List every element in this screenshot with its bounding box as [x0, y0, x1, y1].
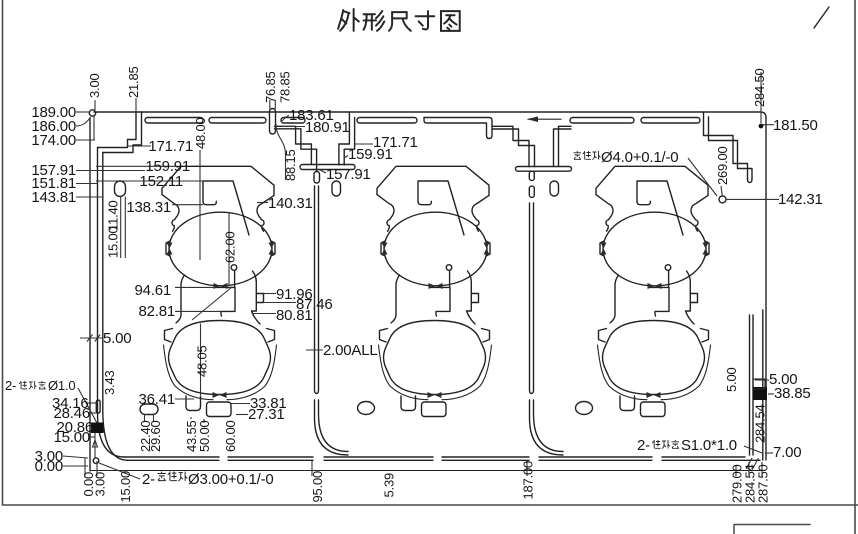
- svg-text:2-: 2-: [637, 437, 650, 454]
- svg-text:3.00: 3.00: [87, 73, 102, 98]
- svg-text:62.00: 62.00: [223, 231, 238, 263]
- svg-text:7.00: 7.00: [773, 444, 801, 461]
- svg-text:2.00ALL: 2.00ALL: [323, 342, 377, 359]
- svg-text:15.00: 15.00: [106, 226, 121, 258]
- svg-text:50.00: 50.00: [197, 420, 212, 452]
- svg-text:180.91: 180.91: [305, 119, 350, 136]
- svg-text:171.71: 171.71: [148, 138, 193, 155]
- svg-text:36.41: 36.41: [138, 391, 175, 408]
- svg-text:0.00: 0.00: [35, 458, 63, 475]
- svg-text:38.85: 38.85: [774, 385, 811, 402]
- svg-text:78.85: 78.85: [278, 71, 293, 103]
- svg-text:152.11: 152.11: [139, 173, 183, 190]
- svg-text:5.39: 5.39: [382, 473, 397, 498]
- svg-text:21.85: 21.85: [126, 66, 141, 98]
- svg-text:187.00: 187.00: [521, 461, 536, 500]
- svg-text:15.00: 15.00: [118, 471, 133, 503]
- svg-text:174.00: 174.00: [31, 132, 76, 149]
- svg-text:Ø1.0: Ø1.0: [48, 378, 75, 393]
- svg-text:159.91: 159.91: [348, 146, 393, 163]
- svg-text:3.43: 3.43: [102, 370, 117, 395]
- svg-text:3.00: 3.00: [93, 472, 108, 497]
- svg-text:157.91: 157.91: [326, 166, 371, 183]
- svg-text:48.00: 48.00: [193, 117, 208, 149]
- svg-text:5.00: 5.00: [724, 367, 739, 392]
- svg-text:95.00: 95.00: [310, 471, 325, 503]
- svg-text:88.15: 88.15: [283, 149, 298, 181]
- svg-text:140.31: 140.31: [268, 195, 313, 212]
- svg-text:284.54: 284.54: [753, 404, 768, 443]
- svg-text:15.00: 15.00: [53, 429, 90, 446]
- svg-text:2-: 2-: [142, 471, 155, 488]
- svg-text:5.00: 5.00: [103, 330, 131, 347]
- svg-text:60.00: 60.00: [223, 420, 238, 452]
- svg-text:Ø4.0+0.1/-0: Ø4.0+0.1/-0: [601, 149, 678, 166]
- svg-text:2-: 2-: [5, 378, 16, 393]
- svg-text:181.50: 181.50: [773, 117, 818, 134]
- svg-text:11.40: 11.40: [106, 200, 121, 231]
- svg-text:142.31: 142.31: [778, 191, 823, 208]
- svg-text:269.00: 269.00: [715, 146, 730, 185]
- svg-text:Ø3.00+0.1/-0: Ø3.00+0.1/-0: [188, 471, 274, 488]
- svg-text:48.05: 48.05: [195, 345, 210, 377]
- svg-text:82.81: 82.81: [138, 303, 175, 320]
- svg-text:138.31: 138.31: [126, 199, 171, 216]
- svg-text:76.85: 76.85: [263, 71, 278, 103]
- svg-text:27.31: 27.31: [248, 406, 285, 423]
- svg-text:29.60: 29.60: [148, 420, 163, 452]
- svg-text:143.81: 143.81: [31, 189, 76, 206]
- svg-text:287.50: 287.50: [756, 464, 771, 503]
- svg-text:284.50: 284.50: [752, 68, 767, 107]
- svg-text:S1.0*1.0: S1.0*1.0: [681, 437, 737, 454]
- svg-text:80.81: 80.81: [276, 307, 313, 324]
- svg-text:94.61: 94.61: [134, 282, 171, 299]
